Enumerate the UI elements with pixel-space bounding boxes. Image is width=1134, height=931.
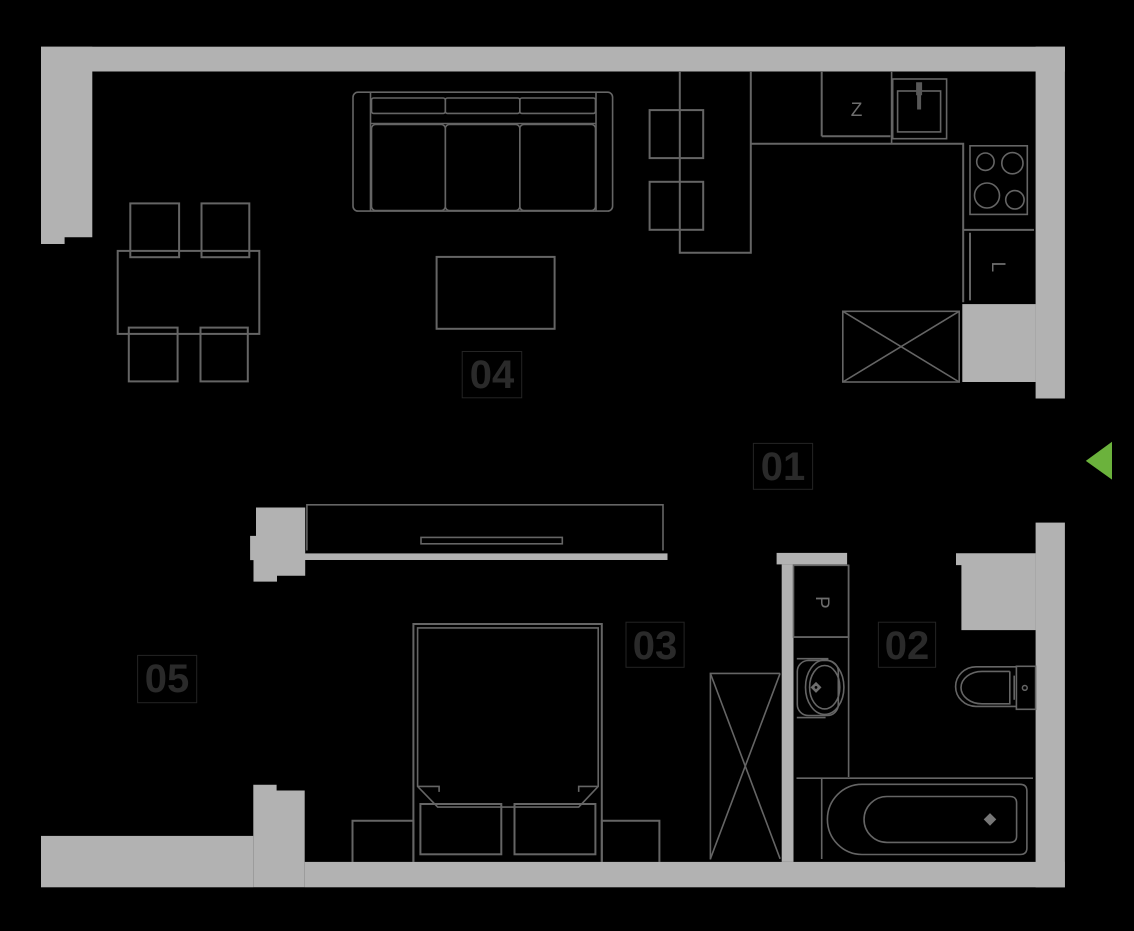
svg-text:01: 01 xyxy=(761,445,806,489)
svg-text:03: 03 xyxy=(633,624,678,668)
svg-text:L: L xyxy=(987,262,1008,273)
svg-text:02: 02 xyxy=(885,624,930,668)
svg-text:05: 05 xyxy=(145,657,190,701)
svg-text:P: P xyxy=(811,596,832,609)
svg-text:04: 04 xyxy=(470,353,515,397)
svg-text:Z: Z xyxy=(851,100,863,121)
